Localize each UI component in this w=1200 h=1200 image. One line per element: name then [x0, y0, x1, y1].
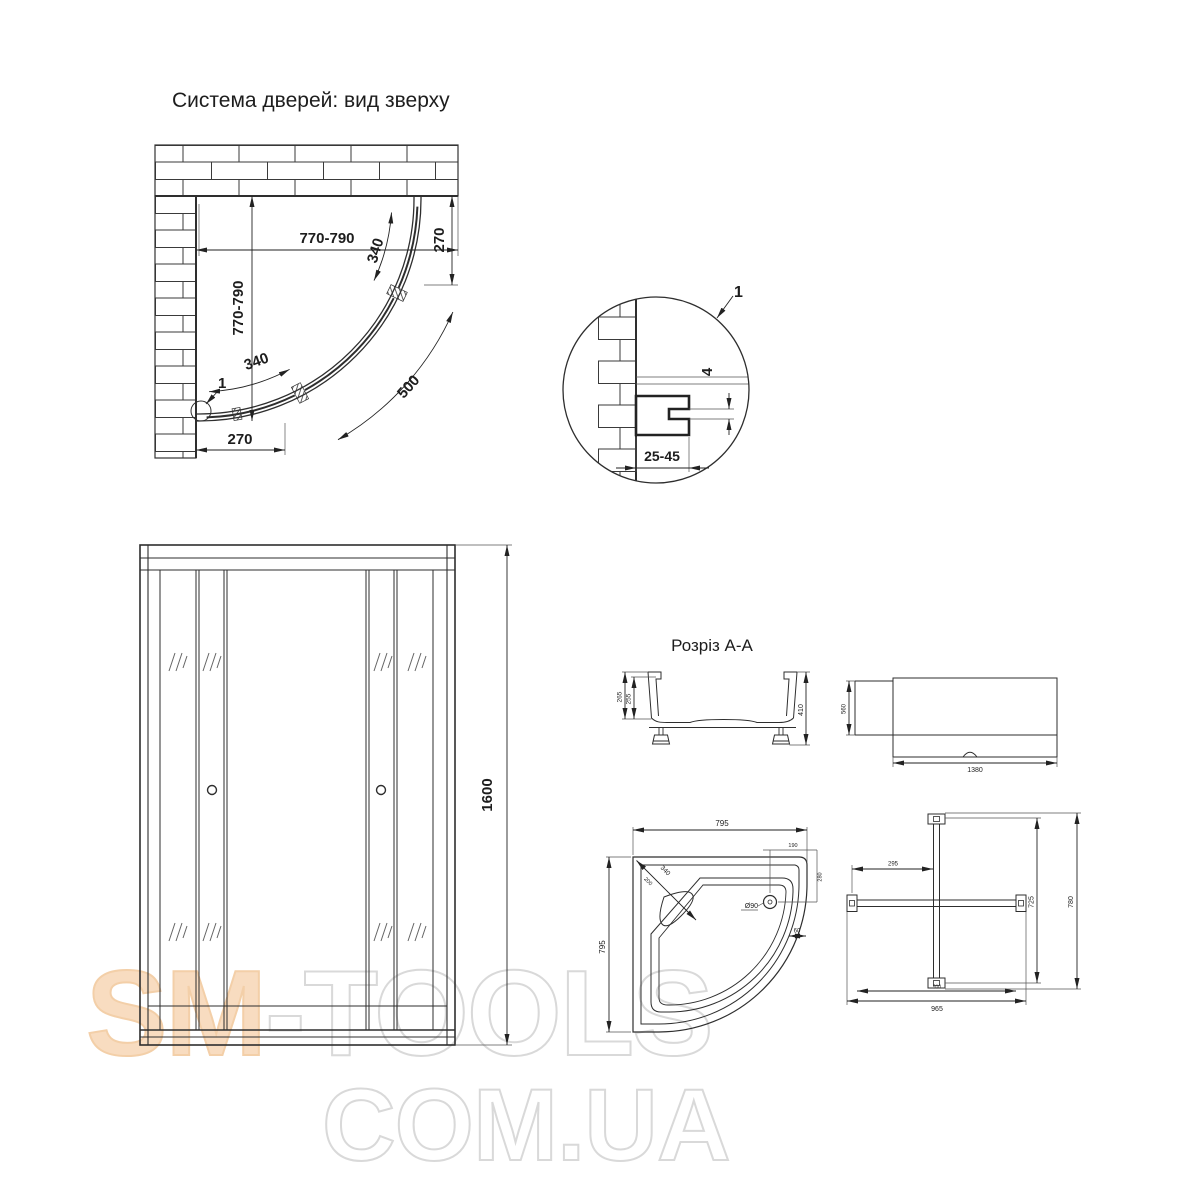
- dim-drain: Ø90: [745, 903, 758, 910]
- dim-profile-offset: 295: [888, 862, 899, 868]
- section-title: Розріз А-А: [671, 636, 753, 655]
- glass-panel-edges: [160, 570, 433, 1030]
- detail-wall-brick: [598, 295, 636, 485]
- dim-profile-outer-height: 780: [1068, 896, 1075, 908]
- door-stopper: [232, 407, 242, 420]
- drain-hole: [764, 896, 777, 909]
- glass-door-arc: [305, 298, 394, 390]
- dim-tray-width: 795: [715, 819, 729, 828]
- dim-profile-inner-width: 910: [933, 985, 942, 991]
- dim-drain-y: 280: [818, 872, 824, 881]
- track-inner: [196, 196, 414, 414]
- horizontal-profile: [857, 900, 1016, 907]
- apron-panel: [893, 678, 1057, 757]
- top-view-drawing: 770-790 770-790 270 270 340 340 500 1: [155, 145, 458, 458]
- page-title: Система дверей: вид зверху: [172, 89, 450, 112]
- dim-rim-width: 60: [794, 929, 801, 935]
- drawing-sheet: Система дверей: вид зверху: [0, 0, 1200, 1200]
- dim-profile-width: 25-45: [644, 448, 680, 464]
- section-aa-drawing: Розріз А-А 265 255 410: [617, 636, 811, 745]
- technical-drawing-page: SM-TOOLS COM.UA Система дверей: вид звер…: [0, 0, 1200, 1200]
- dim-bottom-return: 270: [227, 431, 252, 448]
- dim-apron-height: 560: [842, 703, 848, 714]
- dim-door-bottom: 340: [242, 350, 271, 375]
- dim-seat-diagonal: 340: [659, 865, 672, 878]
- dim-frame-height: 1600: [479, 778, 496, 811]
- dim-tray-depth: 795: [598, 940, 607, 954]
- dim-apron-length: 1380: [967, 767, 983, 774]
- dim-door-top: 340: [364, 236, 388, 265]
- wall-left: [155, 196, 196, 458]
- door-frame: [140, 545, 455, 1045]
- dim-left-height: 770-790: [230, 280, 247, 335]
- dim-profile-inner-height: 725: [1029, 896, 1036, 908]
- detail-ref-label: 1: [218, 375, 226, 392]
- dim-rim-outer: 265: [617, 691, 624, 702]
- wall-top: [155, 145, 458, 196]
- detail-callout: 4 25-45 1: [563, 284, 750, 485]
- dim-radius: 500: [394, 372, 423, 402]
- door-handle: [377, 786, 386, 795]
- wall-profile-section: [636, 396, 689, 435]
- tray-foot: [653, 728, 670, 745]
- vertical-profile: [934, 824, 940, 978]
- dim-drain-x: 190: [788, 843, 797, 849]
- dim-seat-inner-diagonal: 200: [642, 876, 653, 887]
- apron-panel-drawing: 560 1380: [842, 678, 1058, 774]
- detail-ref-label-2: 1: [734, 284, 743, 301]
- dim-profile-width: 965: [931, 1006, 943, 1013]
- dim-profile-gap: 4: [699, 367, 716, 376]
- profile-frame-drawing: 295 725 780 910 965: [847, 813, 1081, 1013]
- dim-rim-inner: 255: [626, 693, 633, 704]
- front-view-drawing: 1600: [140, 545, 512, 1045]
- tray-top-view-drawing: Ø90 190 280 60 795 795 340 200: [598, 819, 824, 1032]
- dim-right-return: 270: [431, 227, 448, 252]
- tray-basin-section: [652, 718, 794, 723]
- apron-notch: [963, 752, 977, 757]
- tray-foot: [773, 728, 790, 745]
- dim-top-width: 770-790: [299, 230, 354, 247]
- glass-door-arc-2: [207, 395, 295, 417]
- dim-total-height: 410: [798, 704, 805, 716]
- door-handle: [208, 786, 217, 795]
- corner-seat: [660, 892, 693, 926]
